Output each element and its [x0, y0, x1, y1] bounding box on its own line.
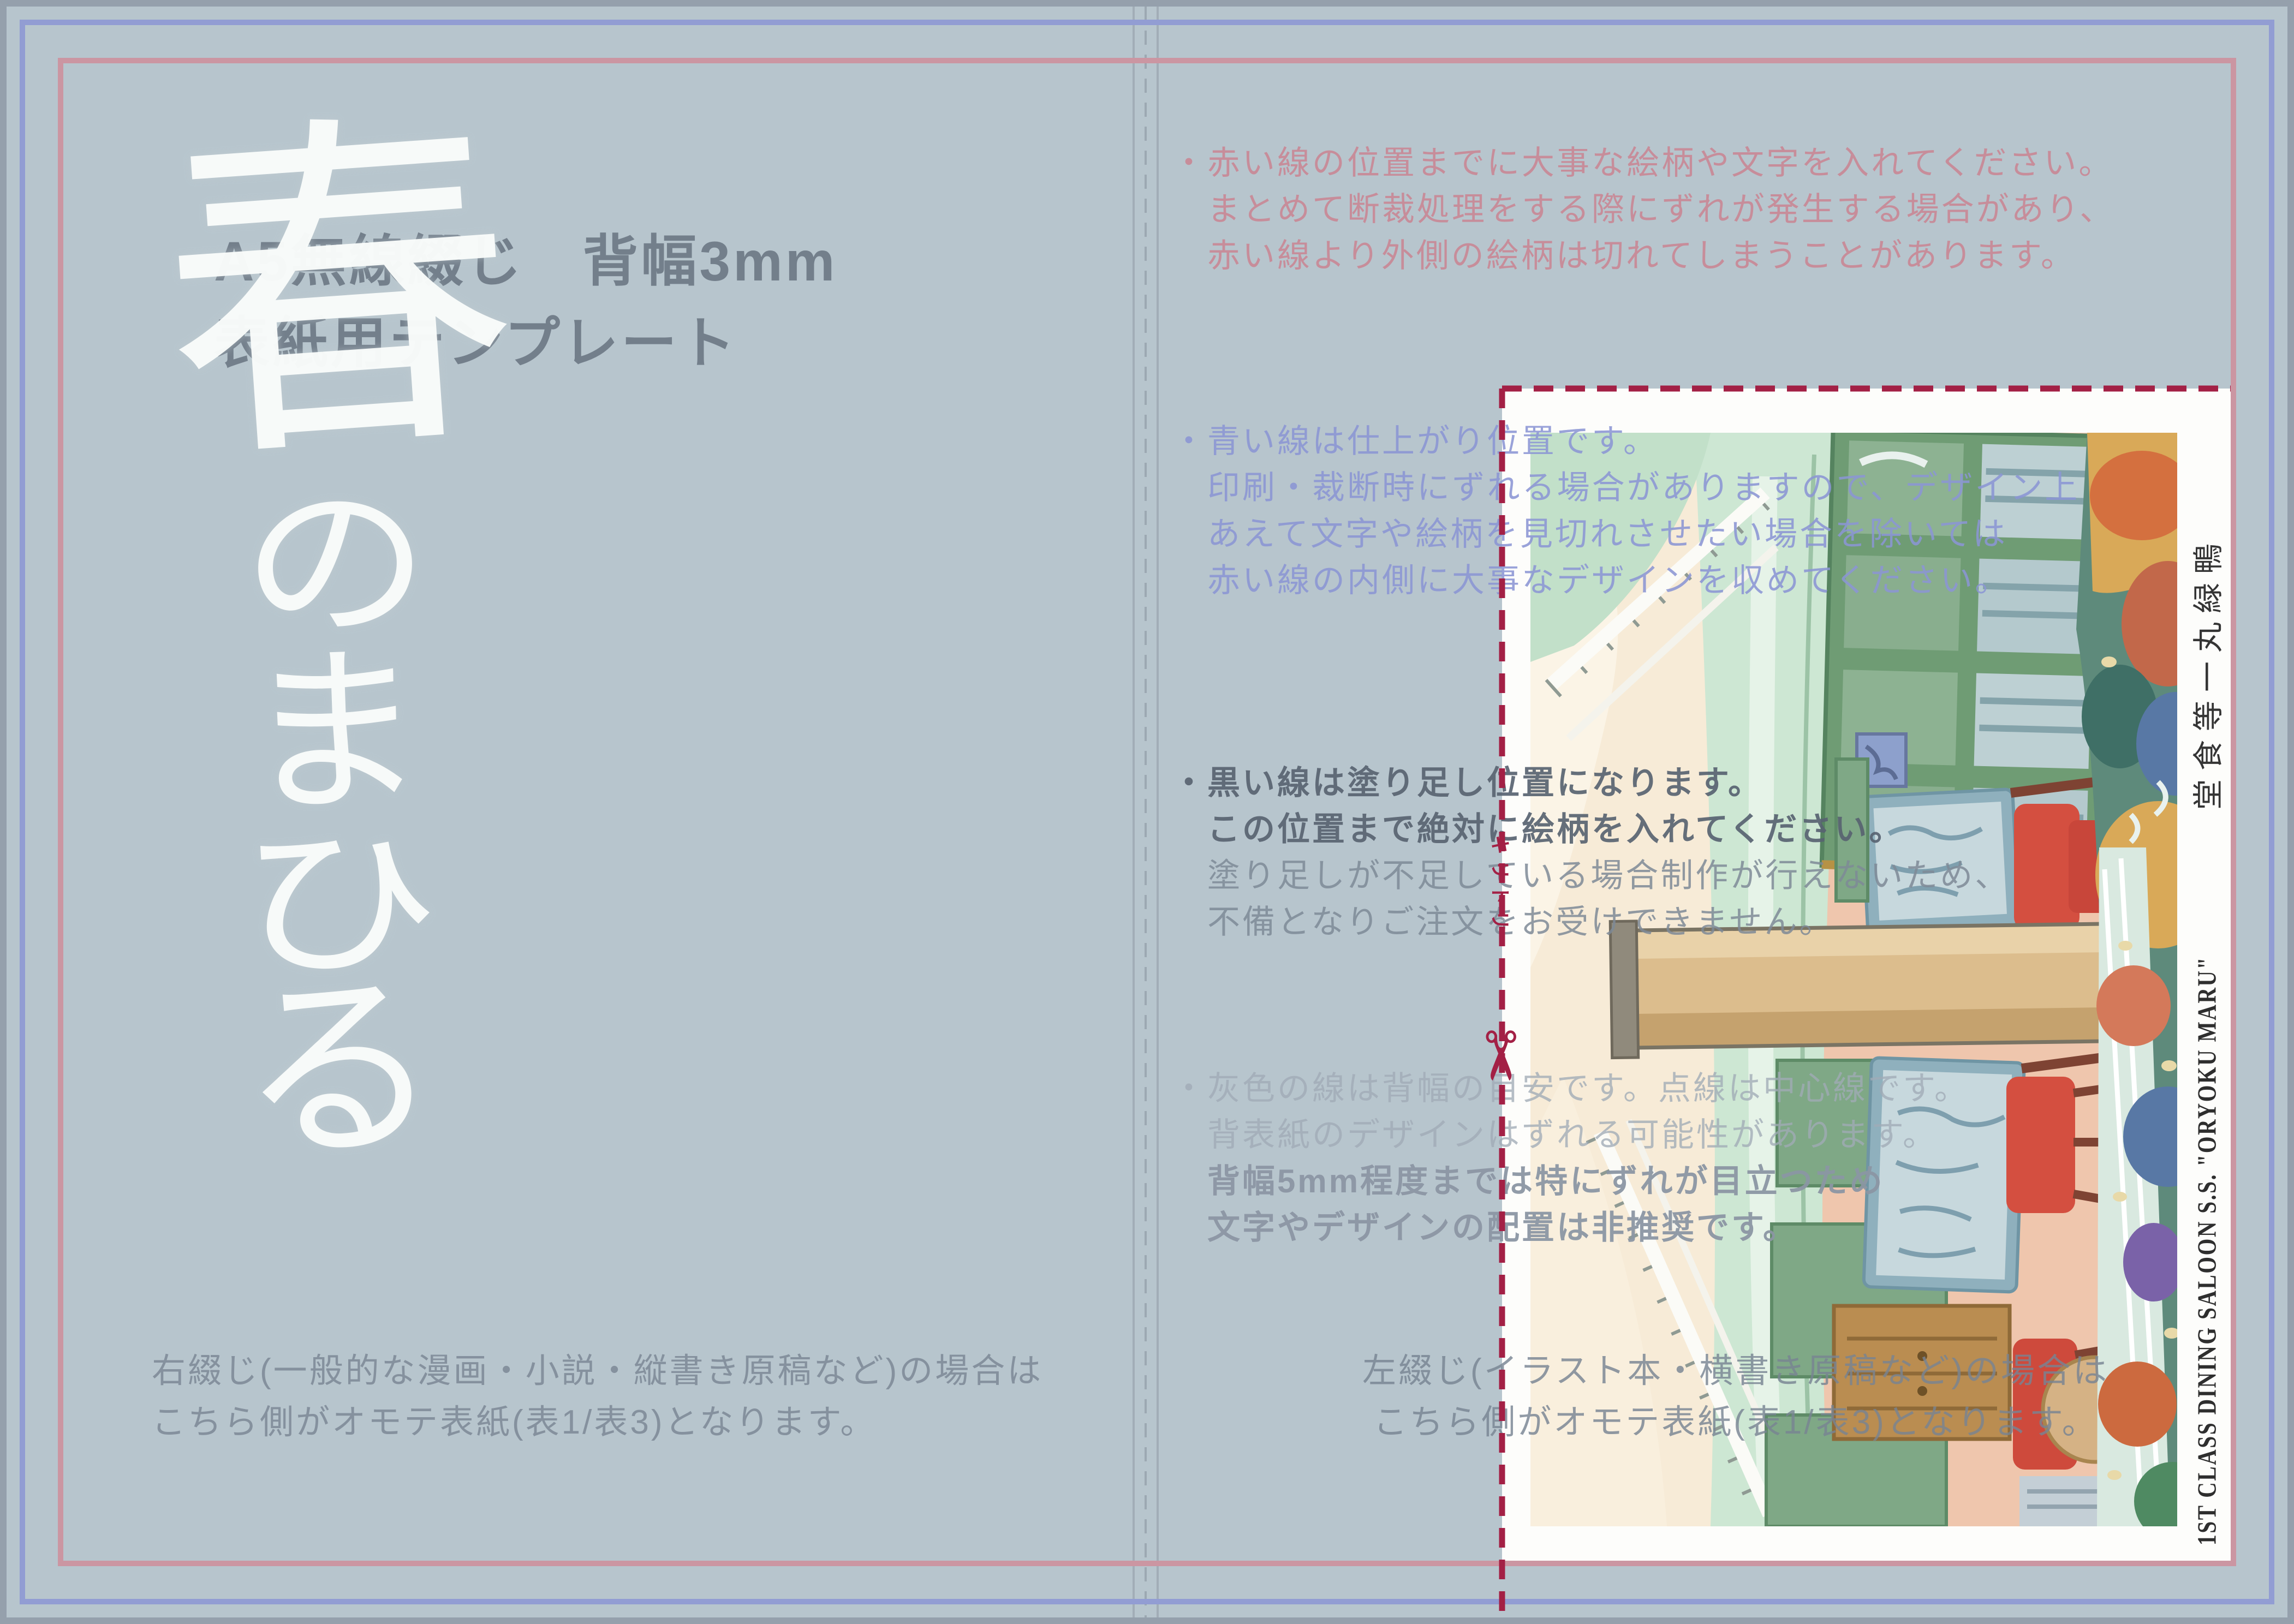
kiritori-label: キリトリ [1487, 835, 1516, 935]
note-line: 赤い線より外側の絵柄は切れてしまうことがあります。 [1207, 232, 2114, 279]
note-black-bleed-position: ・黒い線は塗り足し位置になります。 この位置まで絶対に絵柄を入れてください。 塗… [1172, 760, 2010, 945]
note-line: ・灰色の線は背幅の目安です。点線は中心線です。 [1207, 1065, 1969, 1112]
note-line: 文字やデザインの配置は非推奨です。 [1207, 1204, 1969, 1251]
note-line: 赤い線の内側に大事なデザインを収めてください。 [1207, 557, 2080, 604]
note-line: 不備となりご注文をお受けできません。 [1207, 899, 2010, 945]
postcard-caption-japanese: 堂食等一丸緑鴨 [2184, 535, 2229, 810]
footer-line: 右綴じ(一般的な漫画・小説・縦書き原稿など)の場合は [152, 1346, 1043, 1397]
footer-line: こちら側がオモテ表紙(表1/表3)となります。 [152, 1397, 1043, 1448]
calligraphy-char-ma: ま [241, 640, 427, 826]
calligraphy-char-ru: る [234, 965, 444, 1175]
note-line: 印刷・裁断時にずれる場合がありますので、デザイン上 [1207, 464, 2080, 511]
calligraphy-char-haru: 春 [151, 104, 528, 481]
note-line: ・赤い線の位置までに大事な絵柄や文字を入れてください。 [1207, 140, 2114, 186]
note-red-trim-warning: ・赤い線の位置までに大事な絵柄や文字を入れてください。 まとめて断裁処理をする際… [1172, 140, 2114, 279]
note-gray-spine-guide: ・灰色の線は背幅の目安です。点線は中心線です。 背表紙のデザインはずれる可能性が… [1172, 1065, 1969, 1251]
note-blue-finish-position: ・青い線は仕上がり位置です。 印刷・裁断時にずれる場合がありますので、デザイン上… [1172, 418, 2080, 604]
note-line: 背表紙のデザインはずれる可能性があります。 [1207, 1112, 1969, 1158]
note-line: 塗り足しが不足している場合制作が行えないため、 [1207, 852, 2010, 899]
scissors-icon: ✂ [1460, 1028, 1539, 1084]
note-line: 背幅5mm程度までは特にずれが目立つため [1207, 1158, 1969, 1204]
note-line: あえて文字や絵柄を見切れさせたい場合を除いては [1207, 511, 2080, 557]
footer-left-binding-note: 左綴じ(イラスト本・横書き原稿など)の場合は こちら側がオモテ表紙(表1/表3)… [1310, 1346, 2161, 1448]
cover-template-canvas: A5無線綴じ 背幅3mm 表紙用テンプレート 春 の ま ひ る [0, 0, 2294, 1624]
note-line: この位置まで絶対に絵柄を入れてください。 [1207, 806, 2010, 852]
note-line: ・青い線は仕上がり位置です。 [1207, 418, 2080, 464]
note-line: まとめて断裁処理をする際にずれが発生する場合があり、 [1207, 186, 2114, 232]
postcard-caption-english: 1ST CLASS DINING SALOON S.S. "ORYOKU MAR… [2192, 956, 2223, 1545]
footer-line: こちら側がオモテ表紙(表1/表3)となります。 [1310, 1397, 2161, 1448]
note-line: ・黒い線は塗り足し位置になります。 [1207, 760, 2010, 806]
footer-line: 左綴じ(イラスト本・横書き原稿など)の場合は [1310, 1346, 2161, 1397]
footer-right-binding-note: 右綴じ(一般的な漫画・小説・縦書き原稿など)の場合は こちら側がオモテ表紙(表1… [152, 1346, 1043, 1448]
